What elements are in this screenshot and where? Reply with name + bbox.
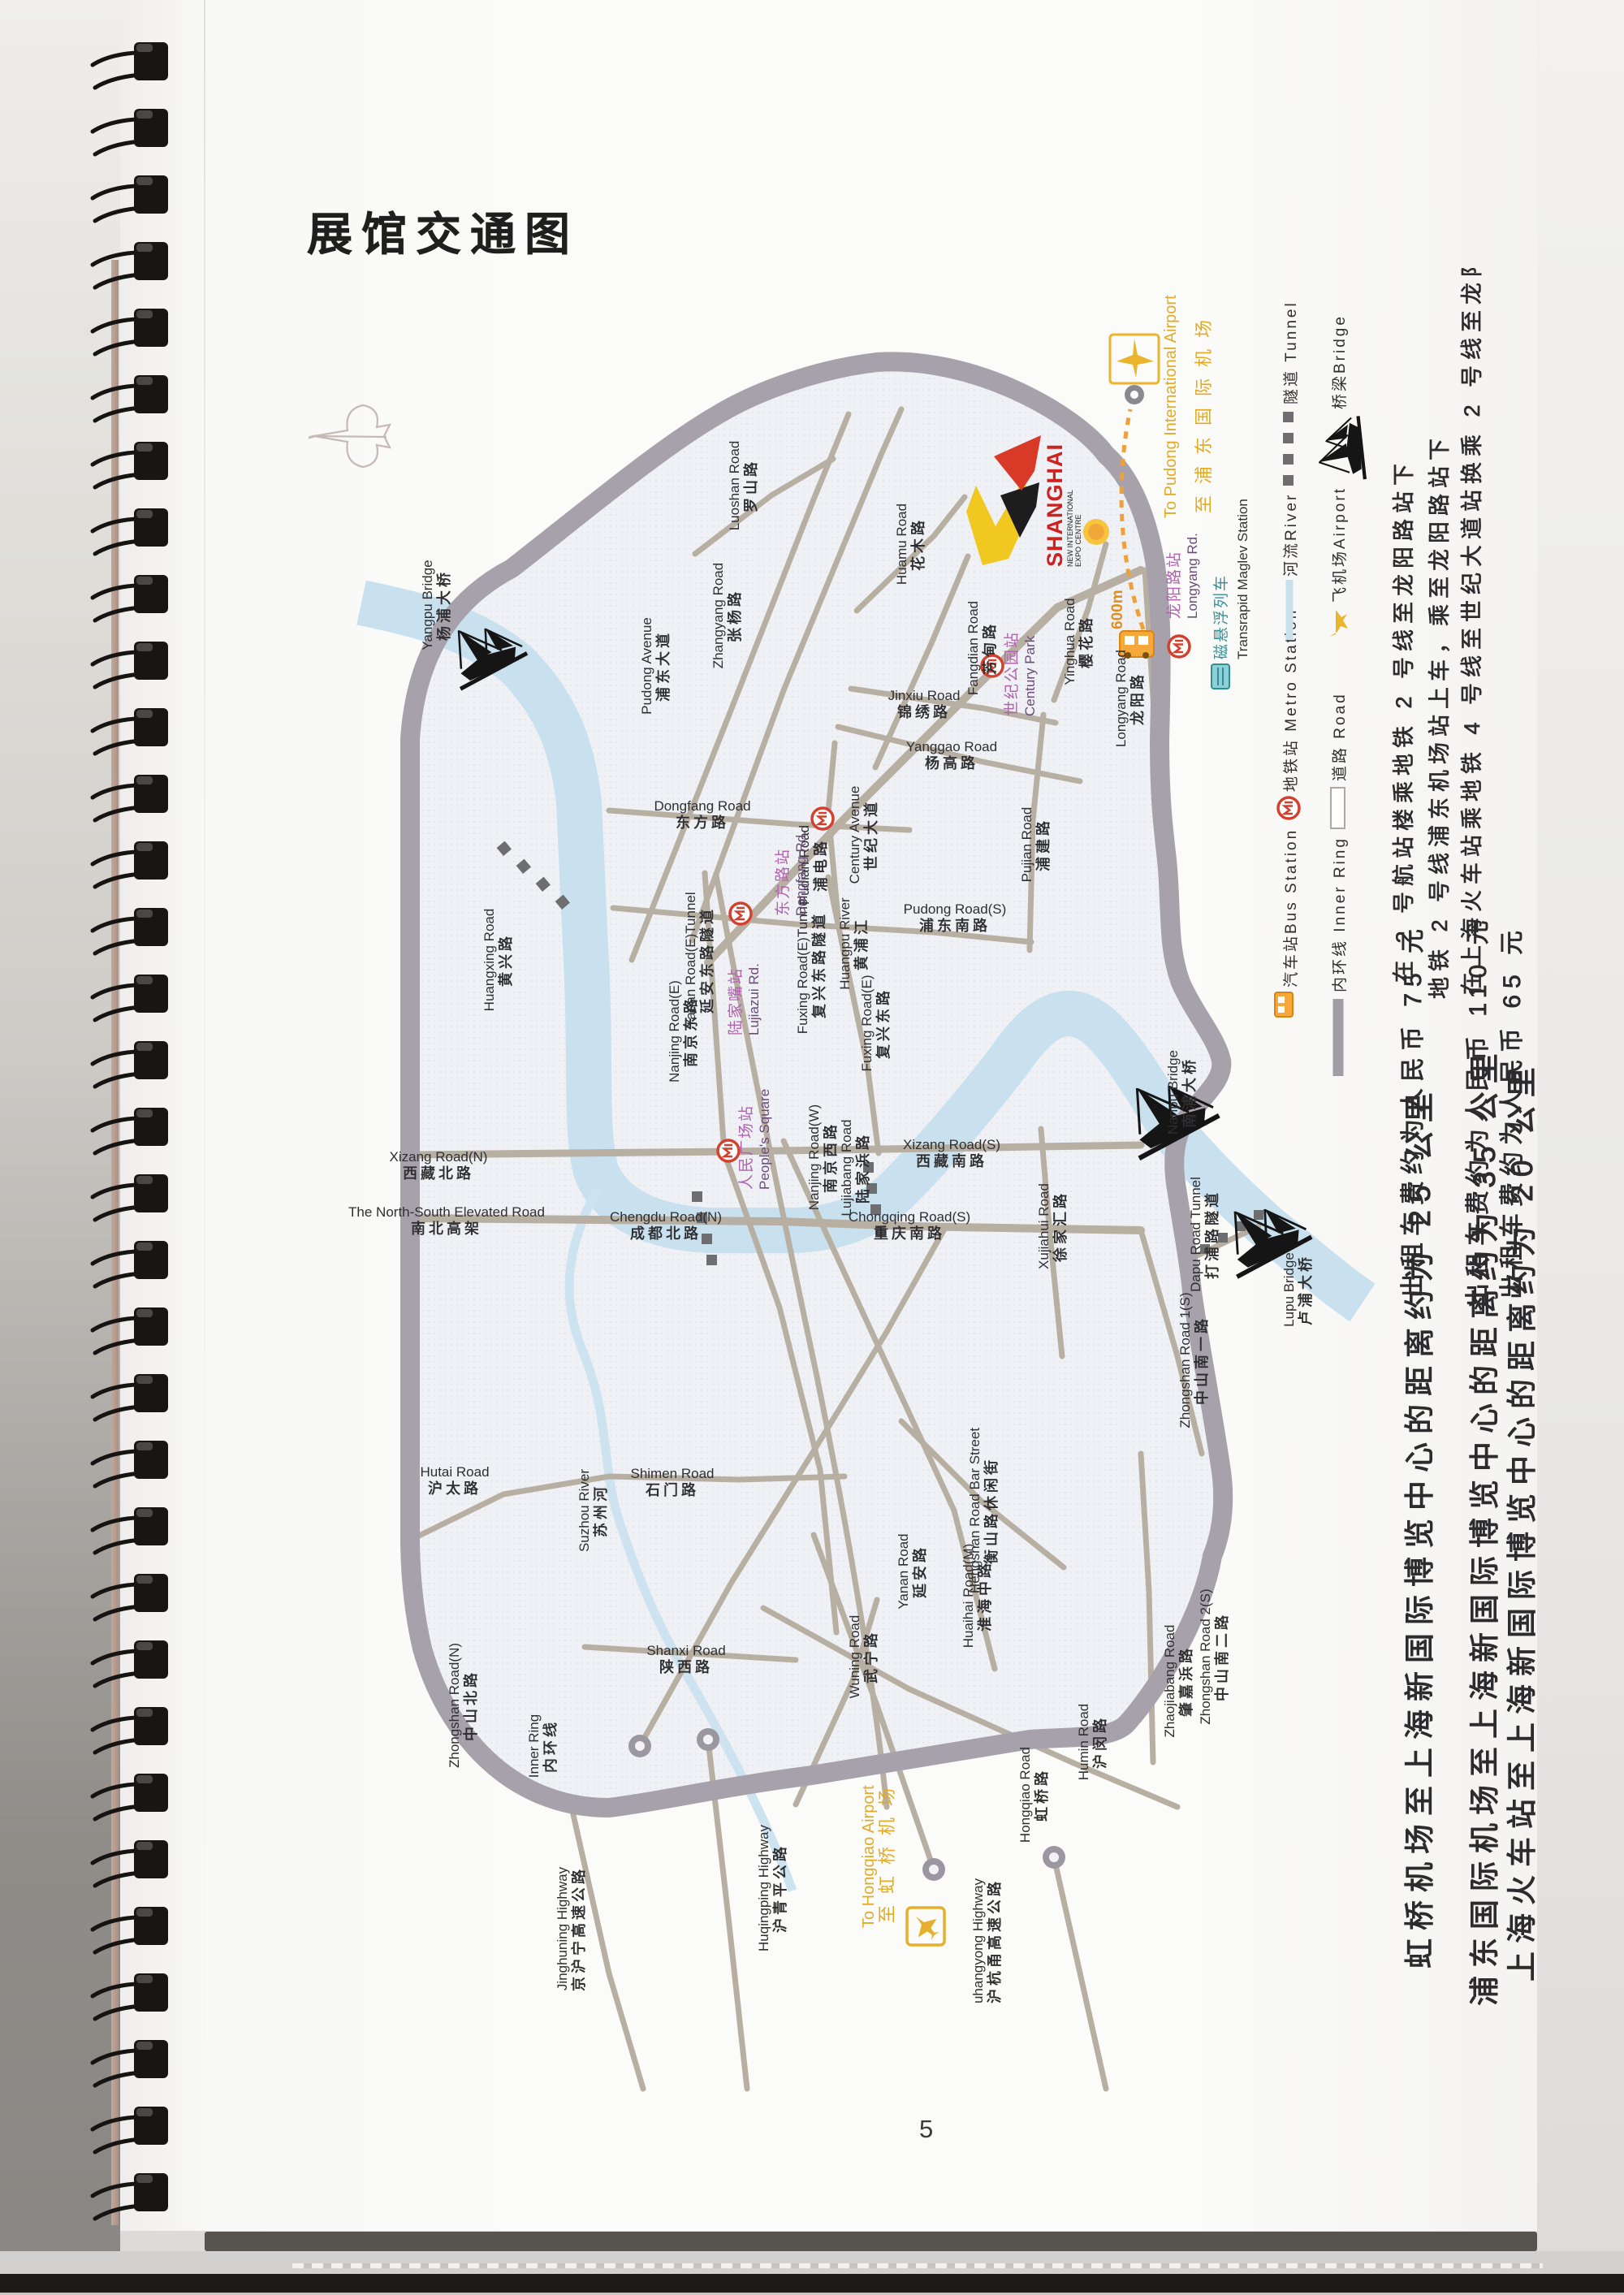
svg-text:苏州河: 苏州河 [593,1484,609,1537]
svg-text:To Hongqiao Airport: To Hongqiao Airport [860,1785,878,1928]
svg-text:Wuning Road: Wuning Road [847,1615,862,1699]
svg-text:Huamu Road: Huamu Road [894,504,909,585]
svg-text:复兴东路: 复兴东路 [875,988,892,1059]
svg-text:Shimen Road: Shimen Road [630,1466,714,1481]
svg-text:东方路站: 东方路站 [774,848,792,916]
svg-text:Transrapid Maglev Station: Transrapid Maglev Station [1235,499,1250,659]
svg-text:武宁路: 武宁路 [863,1630,879,1683]
svg-text:杨浦大桥: 杨浦大桥 [436,569,452,641]
svg-text:Shanxi Road: Shanxi Road [646,1643,725,1658]
svg-text:NEW INTERNATIONAL: NEW INTERNATIONAL [1066,490,1074,567]
svg-text:Century Avenue: Century Avenue [847,786,862,884]
svg-text:Dongfang Road: Dongfang Road [654,798,750,814]
svg-text:徐家汇路: 徐家汇路 [1052,1191,1069,1262]
svg-text:Suzhou River: Suzhou River [577,1469,592,1552]
svg-text:EXPO CENTRE: EXPO CENTRE [1074,514,1082,567]
svg-text:The North-South Elevated Road: The North-South Elevated Road [348,1204,545,1220]
svg-text:地铁 2 号线浦东机场站上车，乘至龙阳路站下: 地铁 2 号线浦东机场站上车，乘至龙阳路站下 [1427,433,1452,999]
svg-text:Huangpu River: Huangpu River [837,897,853,990]
svg-text:石门路: 石门路 [646,1482,699,1498]
svg-text:沪杭甬高速公路: 沪杭甬高速公路 [987,1878,1003,2003]
svg-text:Jinxiu Road: Jinxiu Road [888,688,961,703]
svg-text:西藏南路: 西藏南路 [916,1153,987,1169]
svg-text:汽车站Bus Station: 汽车站Bus Station [1282,828,1300,988]
svg-text:Yinghua Road: Yinghua Road [1062,598,1078,685]
svg-text:芳甸路: 芳甸路 [982,621,998,675]
svg-text:Nanpu Bridge: Nanpu Bridge [1165,1050,1181,1135]
svg-text:沪太路: 沪太路 [428,1480,482,1497]
svg-text:Jinghuning Highway: Jinghuning Highway [555,1866,570,1990]
svg-text:河流River: 河流River [1282,493,1300,577]
svg-text:南京西路: 南京西路 [823,1122,839,1193]
svg-text:Dapu Road Tunnel: Dapu Road Tunnel [1188,1177,1203,1292]
svg-text:SHANGHAI: SHANGHAI [1043,443,1067,567]
svg-text:隧道 Tunnel: 隧道 Tunnel [1282,300,1300,404]
svg-text:打浦路隧道: 打浦路隧道 [1204,1190,1220,1279]
svg-text:Century Park: Century Park [1022,635,1038,716]
svg-text:陕西路: 陕西路 [659,1659,713,1675]
svg-text:沪青平公路: 沪青平公路 [772,1843,788,1933]
svg-text:To Pudong International Airpor: To Pudong International Airport [1162,295,1180,518]
svg-text:出租车费约为人民币 65 元: 出租车费约为人民币 65 元 [1499,924,1526,1299]
svg-text:Pudong Avenue: Pudong Avenue [639,617,654,715]
svg-text:在 2 号航站楼乘地铁 2 号线至龙阳路站下: 在 2 号航站楼乘地铁 2 号线至龙阳路站下 [1392,458,1416,983]
svg-text:延安东路隧道: 延安东路隧道 [699,906,715,1014]
svg-text:Chongqing Road(S): Chongqing Road(S) [849,1209,970,1225]
svg-text:Zhongshan Road 2(S): Zhongshan Road 2(S) [1198,1588,1213,1724]
svg-text:浦东南路: 浦东南路 [919,918,991,934]
svg-text:People's Square: People's Square [757,1089,772,1190]
svg-text:西藏北路: 西藏北路 [403,1165,474,1182]
svg-text:黄兴路: 黄兴路 [498,933,514,987]
svg-text:陆家浜路: 陆家浜路 [855,1132,871,1204]
svg-text:Xizang Road(S): Xizang Road(S) [903,1137,1000,1152]
svg-text:中山北路: 中山北路 [463,1670,479,1741]
svg-text:内环线 Inner Ring: 内环线 Inner Ring [1331,836,1349,992]
svg-text:Zhongshan Road 1(S): Zhongshan Road 1(S) [1177,1292,1193,1428]
svg-text:Humin Road: Humin Road [1076,1704,1091,1781]
svg-text:衡山路休闲街: 衡山路休闲街 [983,1457,1000,1564]
svg-text:内环线: 内环线 [542,1719,559,1773]
svg-text:Xizang Road(N): Xizang Road(N) [390,1149,488,1165]
svg-text:Pujian Road: Pujian Road [1019,807,1034,883]
svg-text:黄浦江: 黄浦江 [853,917,870,970]
svg-text:张杨路: 张杨路 [727,589,743,642]
svg-text:世纪大道: 世纪大道 [863,799,879,871]
svg-text:浦电路: 浦电路 [813,838,829,892]
svg-text:复兴东路隧道: 复兴东路隧道 [811,911,827,1018]
svg-text:罗山路: 罗山路 [743,459,759,512]
svg-text:至虹桥机场: 至虹桥机场 [877,1777,897,1923]
svg-text:Huangxing Road: Huangxing Road [482,909,497,1012]
svg-text:Chengdu Road(N): Chengdu Road(N) [610,1209,722,1225]
svg-text:重庆南路: 重庆南路 [874,1225,945,1242]
svg-text:成都北路: 成都北路 [630,1225,702,1242]
svg-text:人民广场站: 人民广场站 [737,1104,755,1190]
svg-text:Fuxing Road(E): Fuxing Road(E) [859,975,875,1071]
svg-text:桥梁Bridge: 桥梁Bridge [1331,314,1349,409]
svg-text:沪闵路: 沪闵路 [1092,1715,1108,1769]
svg-text:龙阳路: 龙阳路 [1129,672,1146,725]
svg-text:uhangyong Highway: uhangyong Highway [970,1878,986,2003]
svg-text:Hengshan Road Bar Street: Hengshan Road Bar Street [967,1428,983,1593]
svg-text:磁悬浮列车: 磁悬浮列车 [1212,574,1230,659]
svg-text:Hutai Road: Hutai Road [420,1464,489,1480]
svg-text:延安路: 延安路 [912,1545,928,1598]
svg-text:Fangdian Road: Fangdian Road [965,601,981,695]
svg-text:东方路: 东方路 [676,815,729,831]
svg-text:卢浦大桥: 卢浦大桥 [1298,1254,1314,1325]
svg-text:Lujiabang Road: Lujiabang Road [839,1119,854,1216]
svg-text:花木路: 花木路 [910,517,926,571]
svg-text:南京东路: 南京东路 [683,996,699,1067]
svg-text:Pudong Road(S): Pudong Road(S) [904,901,1007,917]
svg-text:肇嘉浜路: 肇嘉浜路 [1178,1645,1194,1717]
svg-text:龙阳路站: 龙阳路站 [1165,551,1183,619]
svg-text:Inner Ring: Inner Ring [526,1714,542,1778]
svg-text:Longyang Rd.: Longyang Rd. [1185,533,1200,619]
svg-text:京沪宁高速公路: 京沪宁高速公路 [571,1866,587,1991]
svg-text:Zhangyang Road: Zhangyang Road [710,563,726,668]
svg-text:杨高路: 杨高路 [925,755,978,771]
svg-text:Hongqiao Road: Hongqiao Road [1017,1747,1033,1843]
svg-text:樱花路: 樱花路 [1078,615,1095,668]
svg-text:世纪公园站: 世纪公园站 [1003,631,1021,716]
svg-text:道路 Road: 道路 Road [1331,692,1349,781]
svg-text:南北高架: 南北高架 [411,1221,482,1237]
svg-text:Lupu Bridge: Lupu Bridge [1281,1252,1297,1327]
svg-text:浦东大道: 浦东大道 [655,630,672,702]
svg-text:浦建路: 浦建路 [1035,818,1052,871]
svg-text:Huqingping Highway: Huqingping Highway [756,1825,771,1951]
svg-text:陆家嘴站: 陆家嘴站 [727,967,745,1035]
svg-text:虹桥路: 虹桥路 [1034,1768,1050,1822]
svg-text:600m: 600m [1109,590,1126,629]
svg-text:中山南一路: 中山南一路 [1194,1316,1210,1405]
svg-text:Dongfang Rd.: Dongfang Rd. [793,831,809,916]
svg-text:至浦东国际机场: 至浦东国际机场 [1194,309,1214,513]
svg-text:Yanan Road: Yanan Road [896,1533,911,1609]
svg-text:Yanggao Road: Yanggao Road [906,739,997,754]
svg-text:中山南二路: 中山南二路 [1214,1612,1230,1701]
svg-text:Longyang Road: Longyang Road [1113,650,1129,747]
svg-text:Zhaojiabang Road: Zhaojiabang Road [1162,1625,1177,1738]
svg-text:锦绣路: 锦绣路 [897,704,951,720]
svg-text:飞机场Airport: 飞机场Airport [1331,486,1349,603]
svg-text:Nanjing Road(W): Nanjing Road(W) [806,1104,822,1210]
svg-text:Yangpu Bridge: Yangpu Bridge [420,560,435,650]
svg-text:南浦大桥: 南浦大桥 [1181,1057,1198,1128]
svg-text:Luoshan Road: Luoshan Road [727,441,742,531]
svg-text:Lujiazui Rd.: Lujiazui Rd. [746,963,762,1035]
svg-text:Zhongshan Road(N): Zhongshan Road(N) [447,1643,462,1768]
svg-text:Xujiahui Road: Xujiahui Road [1036,1183,1052,1269]
svg-text:在上海火车站乘地铁 4 号线至世纪大道站换乘 2 号线至龙阳: 在上海火车站乘地铁 4 号线至世纪大道站换乘 2 号线至龙阳路站下 [1460,268,1484,995]
svg-text:Nanjing Road(E): Nanjing Road(E) [667,980,682,1083]
